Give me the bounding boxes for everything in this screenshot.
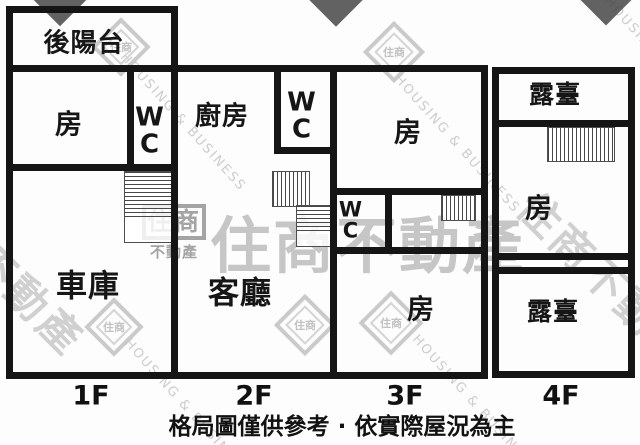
room-label-bedroom-3f-top: 房 [394, 111, 422, 150]
staircase-4f [547, 127, 615, 162]
room-label-wc-3f: W C [339, 200, 363, 243]
watermark-diamond-icon [306, 0, 365, 27]
room-label-rear-balcony: 後陽台 [43, 23, 124, 60]
watermark-diamond-text: 住商 [103, 319, 125, 335]
wall [6, 6, 13, 379]
wall [6, 164, 178, 171]
wall [492, 120, 635, 127]
wc-text: C [287, 116, 317, 143]
room-label-bedroom-3f-bottom: 房 [407, 288, 435, 327]
wall [171, 372, 337, 379]
wc-text: C [135, 131, 165, 158]
wall [330, 372, 488, 379]
wc-text: W [287, 89, 317, 116]
wall [171, 6, 178, 379]
wall [6, 6, 178, 13]
wall [492, 67, 499, 378]
wc-text: C [339, 221, 363, 242]
watermark-diamond-text: 住商 [383, 44, 405, 60]
wall [330, 188, 488, 195]
staircase-1f [124, 171, 172, 243]
wall [274, 147, 337, 154]
wall [127, 65, 134, 171]
watermark-diamond-icon: 住商 [274, 294, 336, 356]
wall [481, 65, 488, 379]
wall [274, 65, 281, 154]
room-label-terrace-4f-top: 露臺 [529, 75, 581, 111]
wc-text: W [135, 104, 165, 131]
watermark-diamond-icon: 住商 [363, 21, 425, 83]
room-label-wc-2f: W C [287, 89, 317, 142]
room-label-bedroom-1f: 房 [55, 103, 83, 142]
watermark-diamond-text: 住商 [294, 317, 316, 333]
staircase-2f-lower [296, 205, 333, 247]
wall [330, 65, 488, 72]
room-label-living-room: 客廳 [208, 268, 272, 313]
wall [385, 188, 392, 254]
floor-plan: HOUSING & BUSINESS HOUSING & BUSINESS HO… [0, 0, 640, 445]
watermark-diamond-icon [581, 0, 632, 25]
floor-label-1f: 1F [72, 381, 109, 412]
wall [6, 372, 178, 379]
wall [330, 65, 337, 379]
watermark-diamond-icon: 住商 [84, 297, 143, 356]
wall [628, 67, 635, 378]
wall [330, 247, 488, 254]
wall [171, 65, 337, 72]
room-label-kitchen: 廚房 [195, 96, 249, 133]
staircase-3f [441, 195, 476, 221]
wall [492, 267, 635, 274]
wc-text: W [339, 200, 363, 221]
floor-label-4f: 4F [542, 381, 579, 412]
watermark-diamond-text: 住商 [380, 315, 402, 331]
wall [492, 253, 635, 260]
disclaimer-caption: 格局圖僅供參考 · 依實際屋況為主 [169, 407, 516, 441]
room-label-terrace-4f-bottom: 露臺 [527, 292, 579, 328]
wall [492, 371, 635, 378]
wall [6, 65, 178, 72]
staircase-2f-upper [272, 171, 310, 207]
room-label-wc-1f: W C [135, 104, 165, 157]
room-label-bedroom-4f: 房 [525, 187, 553, 226]
wall [492, 67, 635, 74]
room-label-garage: 車庫 [56, 261, 120, 306]
